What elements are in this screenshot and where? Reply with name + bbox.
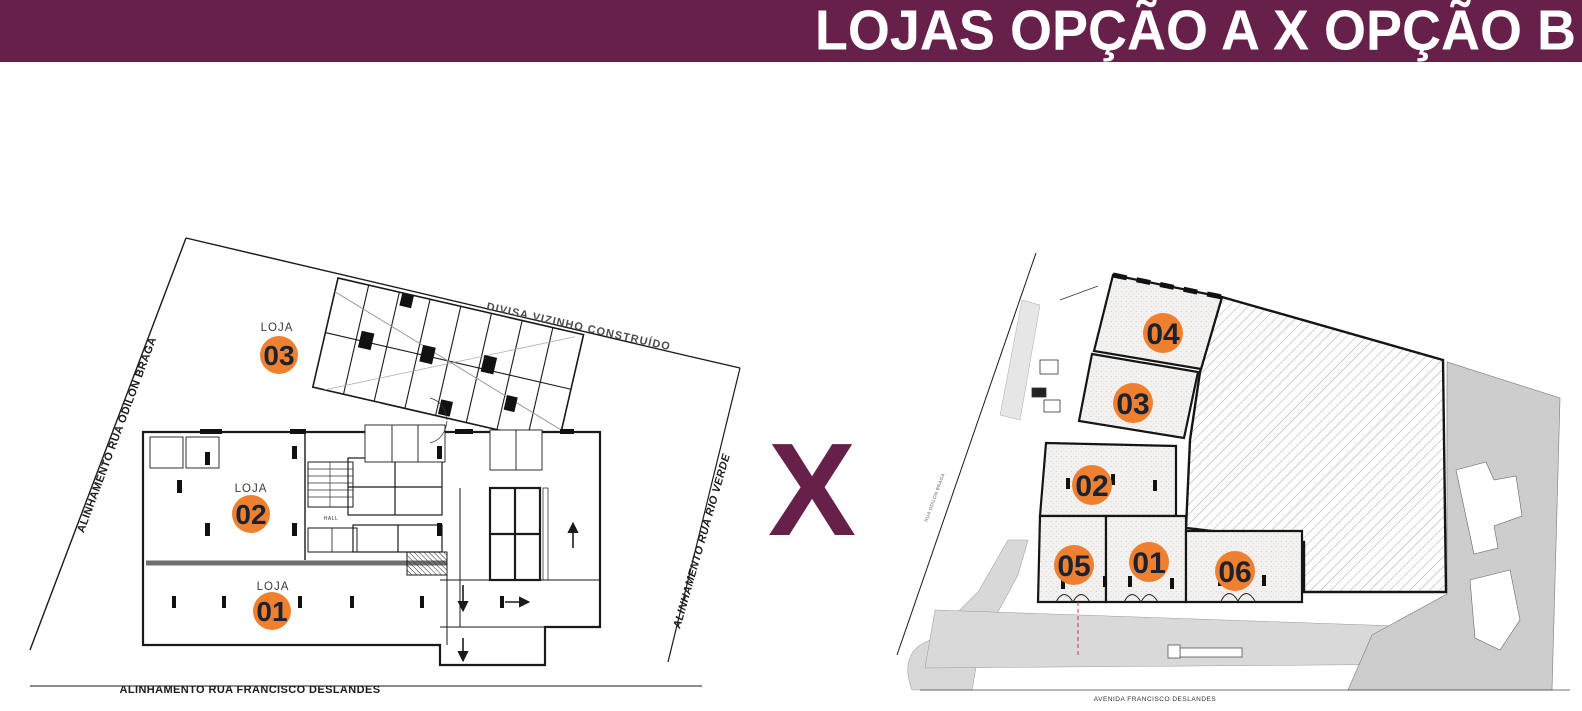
svg-text:02: 02 xyxy=(1075,470,1108,503)
unit-badge-b-03: 03 xyxy=(1113,383,1153,423)
street-francisco-deslandes-b: AVENIDA FRANCISCO DESLANDES xyxy=(1094,696,1217,703)
svg-text:01: 01 xyxy=(1132,547,1165,580)
unit-badge-a-02: LOJA 02 xyxy=(232,483,270,533)
svg-text:02: 02 xyxy=(235,499,266,530)
street-rio-verde: ALINHAMENTO RUA RIO VERDE xyxy=(671,452,733,631)
svg-text:LOJA: LOJA xyxy=(257,581,290,593)
svg-text:05: 05 xyxy=(1057,550,1090,583)
versus-x-mark: X xyxy=(768,416,856,563)
svg-text:04: 04 xyxy=(1146,318,1180,351)
svg-text:03: 03 xyxy=(263,340,294,371)
unit-badge-a-03: LOJA 03 xyxy=(260,322,298,374)
unit-badge-a-01: LOJA 01 xyxy=(253,581,291,630)
unit-badge-b-05: 05 xyxy=(1054,545,1094,585)
unit-badge-b-06: 06 xyxy=(1215,551,1255,591)
unit-badge-b-02: 02 xyxy=(1072,465,1112,505)
svg-text:06: 06 xyxy=(1218,556,1251,589)
plan-a-roof-grid xyxy=(313,278,584,444)
svg-text:03: 03 xyxy=(1116,388,1149,421)
floor-plans-drawing: HALL xyxy=(0,0,1582,711)
street-francisco-deslandes-a: ALINHAMENTO RUA FRANCISCO DESLANDES xyxy=(120,684,381,696)
svg-text:LOJA: LOJA xyxy=(261,322,294,334)
svg-text:LOJA: LOJA xyxy=(235,483,268,495)
street-odilon-braga-b: RUA ODILON BRAGA xyxy=(923,473,945,523)
svg-text:01: 01 xyxy=(256,596,287,627)
plan-a-core: HALL xyxy=(308,462,357,552)
hall-label: HALL xyxy=(324,516,339,522)
plan-a-shaft-grid xyxy=(490,488,548,580)
unit-badge-b-04: 04 xyxy=(1143,313,1183,353)
unit-badge-b-01: 01 xyxy=(1129,542,1169,582)
plan-b: RUA ODILON BRAGA AVENIDA FRANCISCO DESLA… xyxy=(897,253,1570,703)
page: LOJAS OPÇÃO A X OPÇÃO B xyxy=(0,0,1582,711)
plan-b-lot-boundary xyxy=(897,253,1036,655)
plan-a: HALL xyxy=(30,238,740,696)
